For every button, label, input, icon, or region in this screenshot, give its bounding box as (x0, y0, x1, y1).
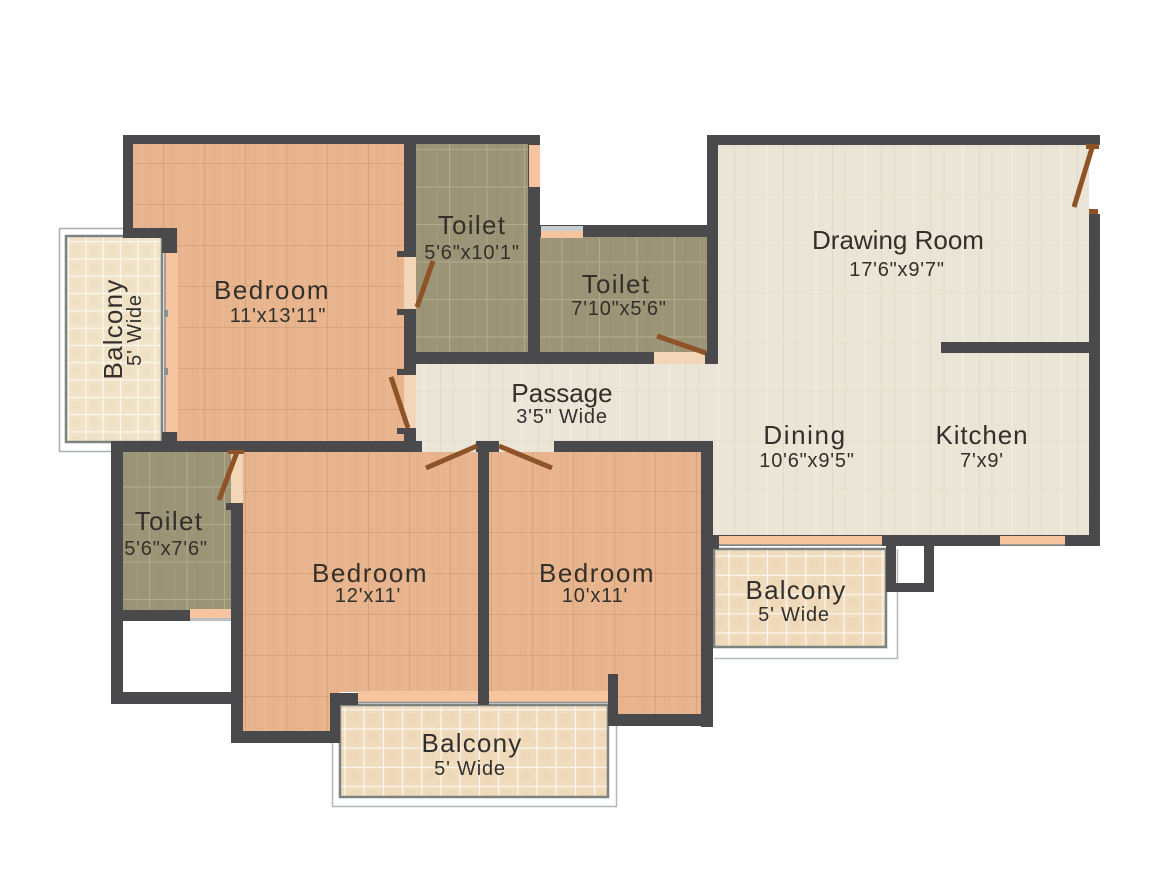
svg-text:Balcony: Balcony (422, 728, 523, 758)
svg-text:7'10"x5'6": 7'10"x5'6" (571, 298, 666, 320)
svg-text:Drawing Room: Drawing Room (812, 225, 984, 255)
svg-text:Bedroom: Bedroom (214, 275, 330, 305)
svg-text:5' Wide: 5' Wide (434, 758, 506, 780)
svg-text:7'x9': 7'x9' (960, 450, 1004, 472)
svg-text:10'x11': 10'x11' (562, 585, 628, 607)
svg-text:Balcony: Balcony (746, 575, 847, 605)
svg-text:17'6"x9'7": 17'6"x9'7" (849, 259, 944, 281)
svg-text:5'6"x7'6": 5'6"x7'6" (124, 538, 208, 560)
svg-text:Toilet: Toilet (438, 210, 507, 240)
svg-text:11'x13'11": 11'x13'11" (230, 305, 327, 327)
svg-text:Toilet: Toilet (582, 269, 651, 299)
svg-text:5' Wide: 5' Wide (758, 604, 830, 626)
svg-text:5'6"x10'1": 5'6"x10'1" (424, 242, 519, 264)
svg-text:3'5" Wide: 3'5" Wide (516, 406, 608, 428)
svg-text:Kitchen: Kitchen (935, 420, 1028, 450)
svg-text:Passage: Passage (511, 378, 612, 408)
svg-text:Bedroom: Bedroom (312, 558, 428, 588)
svg-text:12'x11': 12'x11' (335, 585, 401, 607)
svg-text:Dining: Dining (763, 420, 846, 450)
svg-text:5' Wide: 5' Wide (124, 294, 146, 366)
svg-text:Bedroom: Bedroom (539, 558, 655, 588)
svg-text:10'6"x9'5": 10'6"x9'5" (759, 450, 854, 472)
svg-text:Toilet: Toilet (135, 506, 204, 536)
